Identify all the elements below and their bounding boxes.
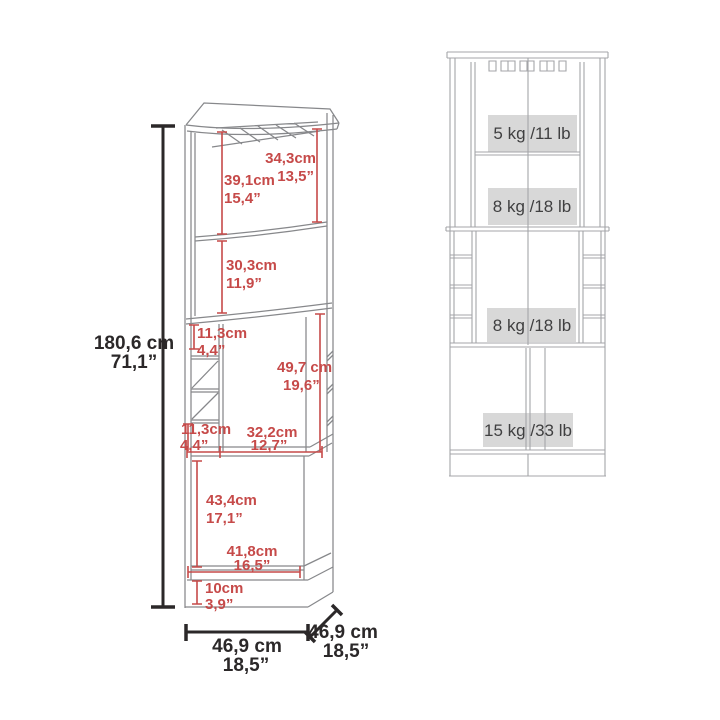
dim-label-10-in: 3,9” bbox=[205, 596, 233, 613]
dim-label-39-1-in: 15,4” bbox=[224, 190, 261, 207]
dim-label-30-3-in: 11,9” bbox=[226, 275, 262, 292]
capacity-label-middle-shelf: 8 kg /18 lb bbox=[493, 316, 571, 335]
left-cabinet-drawing: 34,3cm 13,5” 39,1cm 15,4” 30,3cm 11,9” 1… bbox=[94, 103, 378, 676]
dim-label-32-2-in: 12,7” bbox=[251, 437, 288, 454]
capacity-label-second-shelf: 8 kg /18 lb bbox=[493, 197, 571, 216]
dim-label-34-3-cm: 34,3cm bbox=[265, 150, 316, 167]
dim-label-11-3-top-in: 4,4” bbox=[197, 342, 225, 359]
height-label-cm: 180,6 cm bbox=[94, 333, 174, 354]
dim-label-49-7-in: 19,6” bbox=[283, 377, 320, 394]
dim-label-11-3-top-cm: 11,3cm bbox=[197, 325, 247, 342]
furniture-dimension-diagram: 34,3cm 13,5” 39,1cm 15,4” 30,3cm 11,9” 1… bbox=[0, 0, 720, 720]
width-label-in: 18,5” bbox=[223, 655, 269, 676]
dim-label-43-4-cm: 43,4cm bbox=[206, 492, 257, 509]
right-capacity-drawing: 5 kg /11 lb 8 kg /18 lb 8 kg /18 lb 15 k… bbox=[446, 52, 609, 476]
capacity-label-top-shelf: 5 kg /11 lb bbox=[493, 124, 570, 143]
capacity-label-bottom-cabinet: 15 kg /33 lb bbox=[484, 421, 572, 440]
dim-label-34-3-in: 13,5” bbox=[277, 168, 314, 185]
dim-label-11-3-bot-in: 4,4” bbox=[180, 437, 208, 454]
elevation-bottom-section bbox=[450, 348, 605, 476]
width-label-cm: 46,9 cm bbox=[212, 636, 282, 657]
dim-label-49-7-cm: 49,7 cm bbox=[277, 359, 332, 376]
elevation-frame bbox=[447, 52, 608, 476]
dim-label-43-4-in: 17,1” bbox=[206, 510, 243, 527]
dim-label-30-3-cm: 30,3cm bbox=[226, 257, 277, 274]
red-dimension-labels: 34,3cm 13,5” 39,1cm 15,4” 30,3cm 11,9” 1… bbox=[180, 150, 332, 613]
dim-label-11-3-bot-cm: 11,3cm bbox=[181, 421, 231, 438]
height-label-in: 71,1” bbox=[111, 352, 157, 373]
dim-line-43-4 bbox=[192, 461, 202, 567]
diagram-svg: 34,3cm 13,5” 39,1cm 15,4” 30,3cm 11,9” 1… bbox=[0, 0, 720, 720]
dim-label-10-cm: 10cm bbox=[205, 580, 243, 597]
dim-line-10 bbox=[192, 581, 202, 604]
dim-label-39-1-cm: 39,1cm bbox=[224, 172, 275, 189]
dim-label-41-8-in: 16,5” bbox=[234, 557, 271, 574]
depth-label-in: 18,5” bbox=[323, 641, 369, 662]
stemware-rack-front bbox=[489, 61, 566, 71]
depth-label-cm: 46,9 cm bbox=[308, 622, 378, 643]
